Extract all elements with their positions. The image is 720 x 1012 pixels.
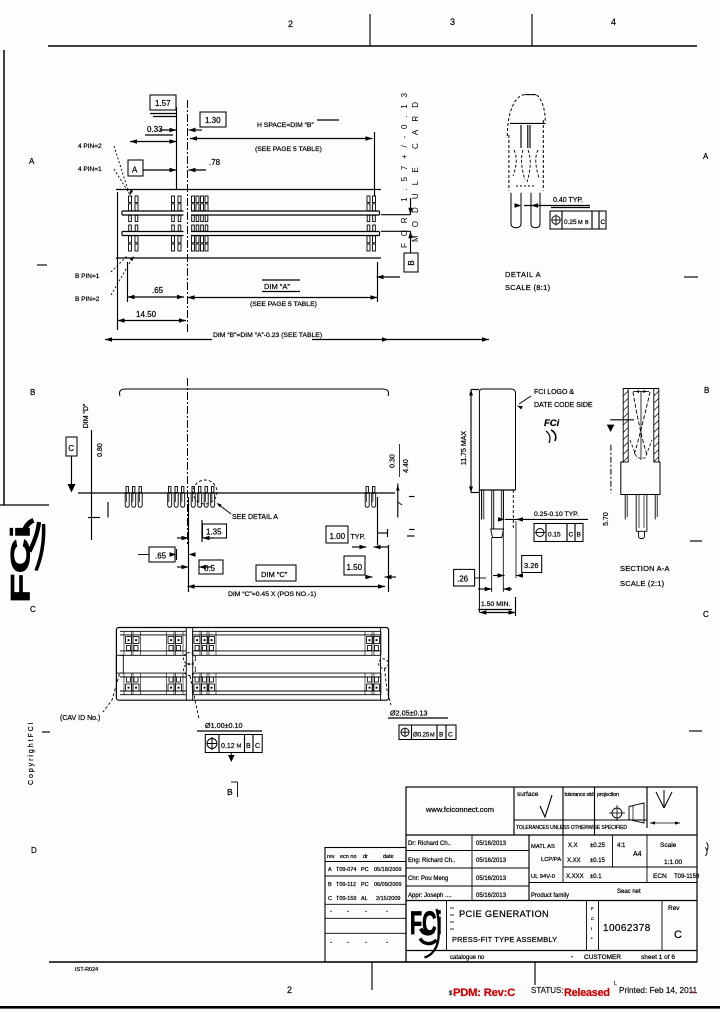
svg-text:sheet 1 of 6: sheet 1 of 6 xyxy=(641,954,675,961)
svg-text:Released: Released xyxy=(564,987,610,999)
svg-text:Product family: Product family xyxy=(531,893,569,899)
svg-text:Rev: Rev xyxy=(668,905,680,912)
svg-text:4 PIN=2: 4 PIN=2 xyxy=(78,143,102,150)
svg-text:C: C xyxy=(255,743,260,750)
svg-text:0.12: 0.12 xyxy=(221,743,235,750)
svg-text:.26: .26 xyxy=(457,575,469,584)
svg-text:catalogue no: catalogue no xyxy=(450,955,485,961)
svg-text:MATL AS: MATL AS xyxy=(531,844,555,850)
svg-text:Appr: Joseph ....: Appr: Joseph .... xyxy=(408,893,452,899)
svg-text:B: B xyxy=(328,882,332,888)
svg-text:-: - xyxy=(347,909,349,915)
svg-text:4.40: 4.40 xyxy=(403,459,410,473)
svg-text:H SPACE=DIM “B”: H SPACE=DIM “B” xyxy=(257,122,314,129)
svg-text:-: - xyxy=(365,940,367,946)
svg-text:TOLERANCES UNLESS OTHERWISE SP: TOLERANCES UNLESS OTHERWISE SPECIFIED xyxy=(516,825,627,831)
svg-text:T09-1159: T09-1159 xyxy=(674,874,700,880)
svg-text:projection: projection xyxy=(597,792,619,798)
svg-text:C: C xyxy=(591,916,594,921)
svg-text:UL 94V-0: UL 94V-0 xyxy=(531,874,555,880)
svg-text:DETAIL A: DETAIL A xyxy=(505,270,541,279)
svg-text:Printed: Feb 14, 2011: Printed: Feb 14, 2011 xyxy=(619,986,698,995)
svg-text:DIM “C”=0.45 X (POS NO.-1): DIM “C”=0.45 X (POS NO.-1) xyxy=(228,591,316,598)
svg-text:F: F xyxy=(591,906,594,911)
svg-text:2/15/2009: 2/15/2009 xyxy=(376,896,400,902)
svg-text:M: M xyxy=(578,220,583,226)
svg-text:1.50 MIN.: 1.50 MIN. xyxy=(481,601,511,608)
svg-text:Chr: Pou Meng: Chr: Pou Meng xyxy=(408,876,448,882)
svg-text:(SEE PAGE 5 TABLE): (SEE PAGE 5 TABLE) xyxy=(255,146,322,153)
svg-text:B PIN=1: B PIN=1 xyxy=(75,273,100,280)
svg-text:05/16/2013: 05/16/2013 xyxy=(476,858,507,864)
svg-text:05/16/2013: 05/16/2013 xyxy=(476,876,507,882)
svg-text:C: C xyxy=(569,532,574,539)
svg-text:A: A xyxy=(703,152,709,161)
svg-text:CUSTOMER: CUSTOMER xyxy=(584,954,621,961)
svg-text:3.26: 3.26 xyxy=(524,561,539,570)
svg-text:D: D xyxy=(31,846,37,855)
svg-text:.65: .65 xyxy=(152,286,164,295)
svg-text:dr: dr xyxy=(363,854,368,860)
svg-text:1.00: 1.00 xyxy=(330,532,346,541)
svg-text:4: 4 xyxy=(611,17,616,27)
svg-text:(CAV ID No.): (CAV ID No.) xyxy=(60,715,100,722)
svg-text:1:1.00: 1:1.00 xyxy=(664,859,682,866)
svg-text:PDM: Rev:C: PDM: Rev:C xyxy=(453,987,515,999)
svg-text:A: A xyxy=(29,157,35,166)
svg-text:-: - xyxy=(386,909,388,915)
svg-text:SCALE (8:1): SCALE (8:1) xyxy=(505,283,551,292)
svg-text:X.XXX: X.XXX xyxy=(566,874,584,880)
svg-text:±0.25: ±0.25 xyxy=(590,843,606,849)
svg-text:AL: AL xyxy=(361,896,368,902)
svg-text:I: I xyxy=(591,926,592,931)
svg-text:T09-074: T09-074 xyxy=(336,867,357,873)
svg-text:C: C xyxy=(328,896,332,902)
svg-text:B: B xyxy=(704,386,709,395)
svg-text:DATE CODE SIDE: DATE CODE SIDE xyxy=(534,402,593,409)
svg-text:Ø2.05±0.13: Ø2.05±0.13 xyxy=(390,709,428,718)
svg-text:B: B xyxy=(227,787,233,797)
svg-text:06/09/2009: 06/09/2009 xyxy=(374,882,402,888)
svg-text:X.X: X.X xyxy=(568,843,578,849)
svg-text:05/18/2009: 05/18/2009 xyxy=(374,867,402,873)
svg-text:Ø0.25: Ø0.25 xyxy=(413,733,430,739)
svg-text:PRESS-FIT TYPE ASSEMBLY: PRESS-FIT TYPE ASSEMBLY xyxy=(452,935,557,944)
svg-text:.65: .65 xyxy=(155,552,167,561)
svg-text:±0.1: ±0.1 xyxy=(590,874,602,880)
svg-text:STATUS:: STATUS: xyxy=(531,986,564,995)
svg-text:1.35: 1.35 xyxy=(206,528,222,537)
svg-text:M: M xyxy=(237,744,242,750)
svg-text:C: C xyxy=(30,605,36,614)
svg-text:14.50: 14.50 xyxy=(136,310,157,319)
svg-text:www.fciconnect.com: www.fciconnect.com xyxy=(425,805,494,814)
svg-text:DIM “D”: DIM “D” xyxy=(83,403,90,428)
svg-text:IST-R024: IST-R024 xyxy=(75,967,98,973)
svg-text:SECTION A-A: SECTION A-A xyxy=(620,564,670,573)
svg-text:3: 3 xyxy=(450,17,455,27)
svg-text:B: B xyxy=(439,732,443,739)
svg-text:FCi: FCi xyxy=(544,418,560,429)
svg-text:B: B xyxy=(246,743,251,750)
svg-text:surface: surface xyxy=(517,791,539,798)
svg-text:-: - xyxy=(330,909,332,915)
svg-text:L: L xyxy=(614,981,617,987)
svg-text:PCIE GENERATION: PCIE GENERATION xyxy=(459,909,549,919)
svg-text:B: B xyxy=(577,532,581,539)
svg-text:T09-112: T09-112 xyxy=(336,882,356,888)
svg-text:PC: PC xyxy=(361,867,369,873)
svg-text:M: M xyxy=(430,733,435,739)
svg-text:Dr: Richard Ch..: Dr: Richard Ch.. xyxy=(408,841,451,847)
svg-text:tolerance std: tolerance std xyxy=(565,792,594,798)
svg-text:(SEE PAGE 5 TABLE): (SEE PAGE 5 TABLE) xyxy=(250,301,317,308)
svg-text:C: C xyxy=(674,929,682,941)
svg-text:0.40 TYP.: 0.40 TYP. xyxy=(553,197,583,204)
svg-text:-: - xyxy=(571,954,574,961)
svg-text:C: C xyxy=(68,444,74,453)
svg-text:0.80: 0.80 xyxy=(97,443,104,457)
svg-text:ecn no: ecn no xyxy=(340,854,357,860)
svg-text:10062378: 10062378 xyxy=(603,923,651,934)
svg-text:5.70: 5.70 xyxy=(603,512,610,526)
svg-text:-: - xyxy=(330,940,332,946)
svg-text:1.57: 1.57 xyxy=(155,99,171,108)
svg-text:date: date xyxy=(383,854,394,860)
svg-text:0.30: 0.30 xyxy=(390,454,397,468)
svg-text:C o p y r i g h t F C I: C o p y r i g h t F C I xyxy=(28,722,35,785)
svg-text:TYP.: TYP. xyxy=(351,534,366,541)
svg-text:FOR 1.57+/-0.13: FOR 1.57+/-0.13 xyxy=(400,92,409,248)
svg-text:T09-159: T09-159 xyxy=(336,896,357,902)
svg-text:X.XX: X.XX xyxy=(567,858,581,864)
svg-text:B PIN=2: B PIN=2 xyxy=(75,296,100,303)
svg-text:A4: A4 xyxy=(633,851,642,858)
svg-text:rev: rev xyxy=(327,854,335,860)
svg-text:2: 2 xyxy=(288,19,293,29)
svg-text:C: C xyxy=(601,219,606,226)
svg-text:Scale: Scale xyxy=(660,842,677,849)
svg-text:±0.15: ±0.15 xyxy=(590,858,606,864)
svg-text:SCALE (2:1): SCALE (2:1) xyxy=(620,579,665,588)
svg-text:B: B xyxy=(407,260,416,265)
svg-text:-: - xyxy=(347,940,349,946)
svg-text:4 PIN=1: 4 PIN=1 xyxy=(78,166,102,173)
svg-text:C: C xyxy=(448,732,453,739)
svg-text:B: B xyxy=(585,220,589,226)
svg-text:DIM “C”: DIM “C” xyxy=(261,570,288,579)
svg-text:0.15: 0.15 xyxy=(548,532,561,539)
svg-text:A: A xyxy=(328,867,332,873)
svg-text:Eng: Richard Ch..: Eng: Richard Ch.. xyxy=(408,858,456,864)
svg-text:0.25-0.10 TYP.: 0.25-0.10 TYP. xyxy=(534,511,579,518)
svg-text:LCP/PA: LCP/PA xyxy=(541,857,561,863)
svg-text:11.75 MAX: 11.75 MAX xyxy=(461,431,468,465)
svg-text:2: 2 xyxy=(287,985,292,995)
svg-text:*: * xyxy=(591,936,593,941)
svg-text:1.50: 1.50 xyxy=(347,563,363,572)
svg-text:SEE DETAIL A: SEE DETAIL A xyxy=(232,514,278,521)
svg-text:05/16/2013: 05/16/2013 xyxy=(476,893,507,899)
svg-text:FCI LOGO &: FCI LOGO & xyxy=(534,389,574,396)
svg-text:PC: PC xyxy=(361,882,369,888)
svg-text:FCi: FCi xyxy=(6,525,36,603)
svg-text:-: - xyxy=(386,940,388,946)
svg-text:.: . xyxy=(692,985,695,996)
svg-text:ECN: ECN xyxy=(653,873,667,880)
svg-text:C: C xyxy=(703,610,709,619)
svg-text:Seac net: Seac net xyxy=(617,889,641,895)
svg-text:DIM “A”: DIM “A” xyxy=(264,282,290,291)
svg-text:4:1: 4:1 xyxy=(617,843,626,849)
svg-text:B: B xyxy=(30,388,35,397)
svg-text:Ø1.00±0.10: Ø1.00±0.10 xyxy=(205,721,243,730)
svg-text:MODULE CARD: MODULE CARD xyxy=(411,102,420,242)
svg-text:-: - xyxy=(365,909,367,915)
svg-text:.78: .78 xyxy=(209,158,221,167)
svg-text:05/16/2013: 05/16/2013 xyxy=(476,841,507,847)
svg-text:1.30: 1.30 xyxy=(205,116,221,125)
svg-text:A: A xyxy=(132,166,138,175)
svg-text:DIM “B”=DIM “A”-0.23 (SEE TABL: DIM “B”=DIM “A”-0.23 (SEE TABLE) xyxy=(213,332,322,339)
svg-text:): ) xyxy=(706,841,709,851)
svg-text:0.25: 0.25 xyxy=(564,219,577,226)
